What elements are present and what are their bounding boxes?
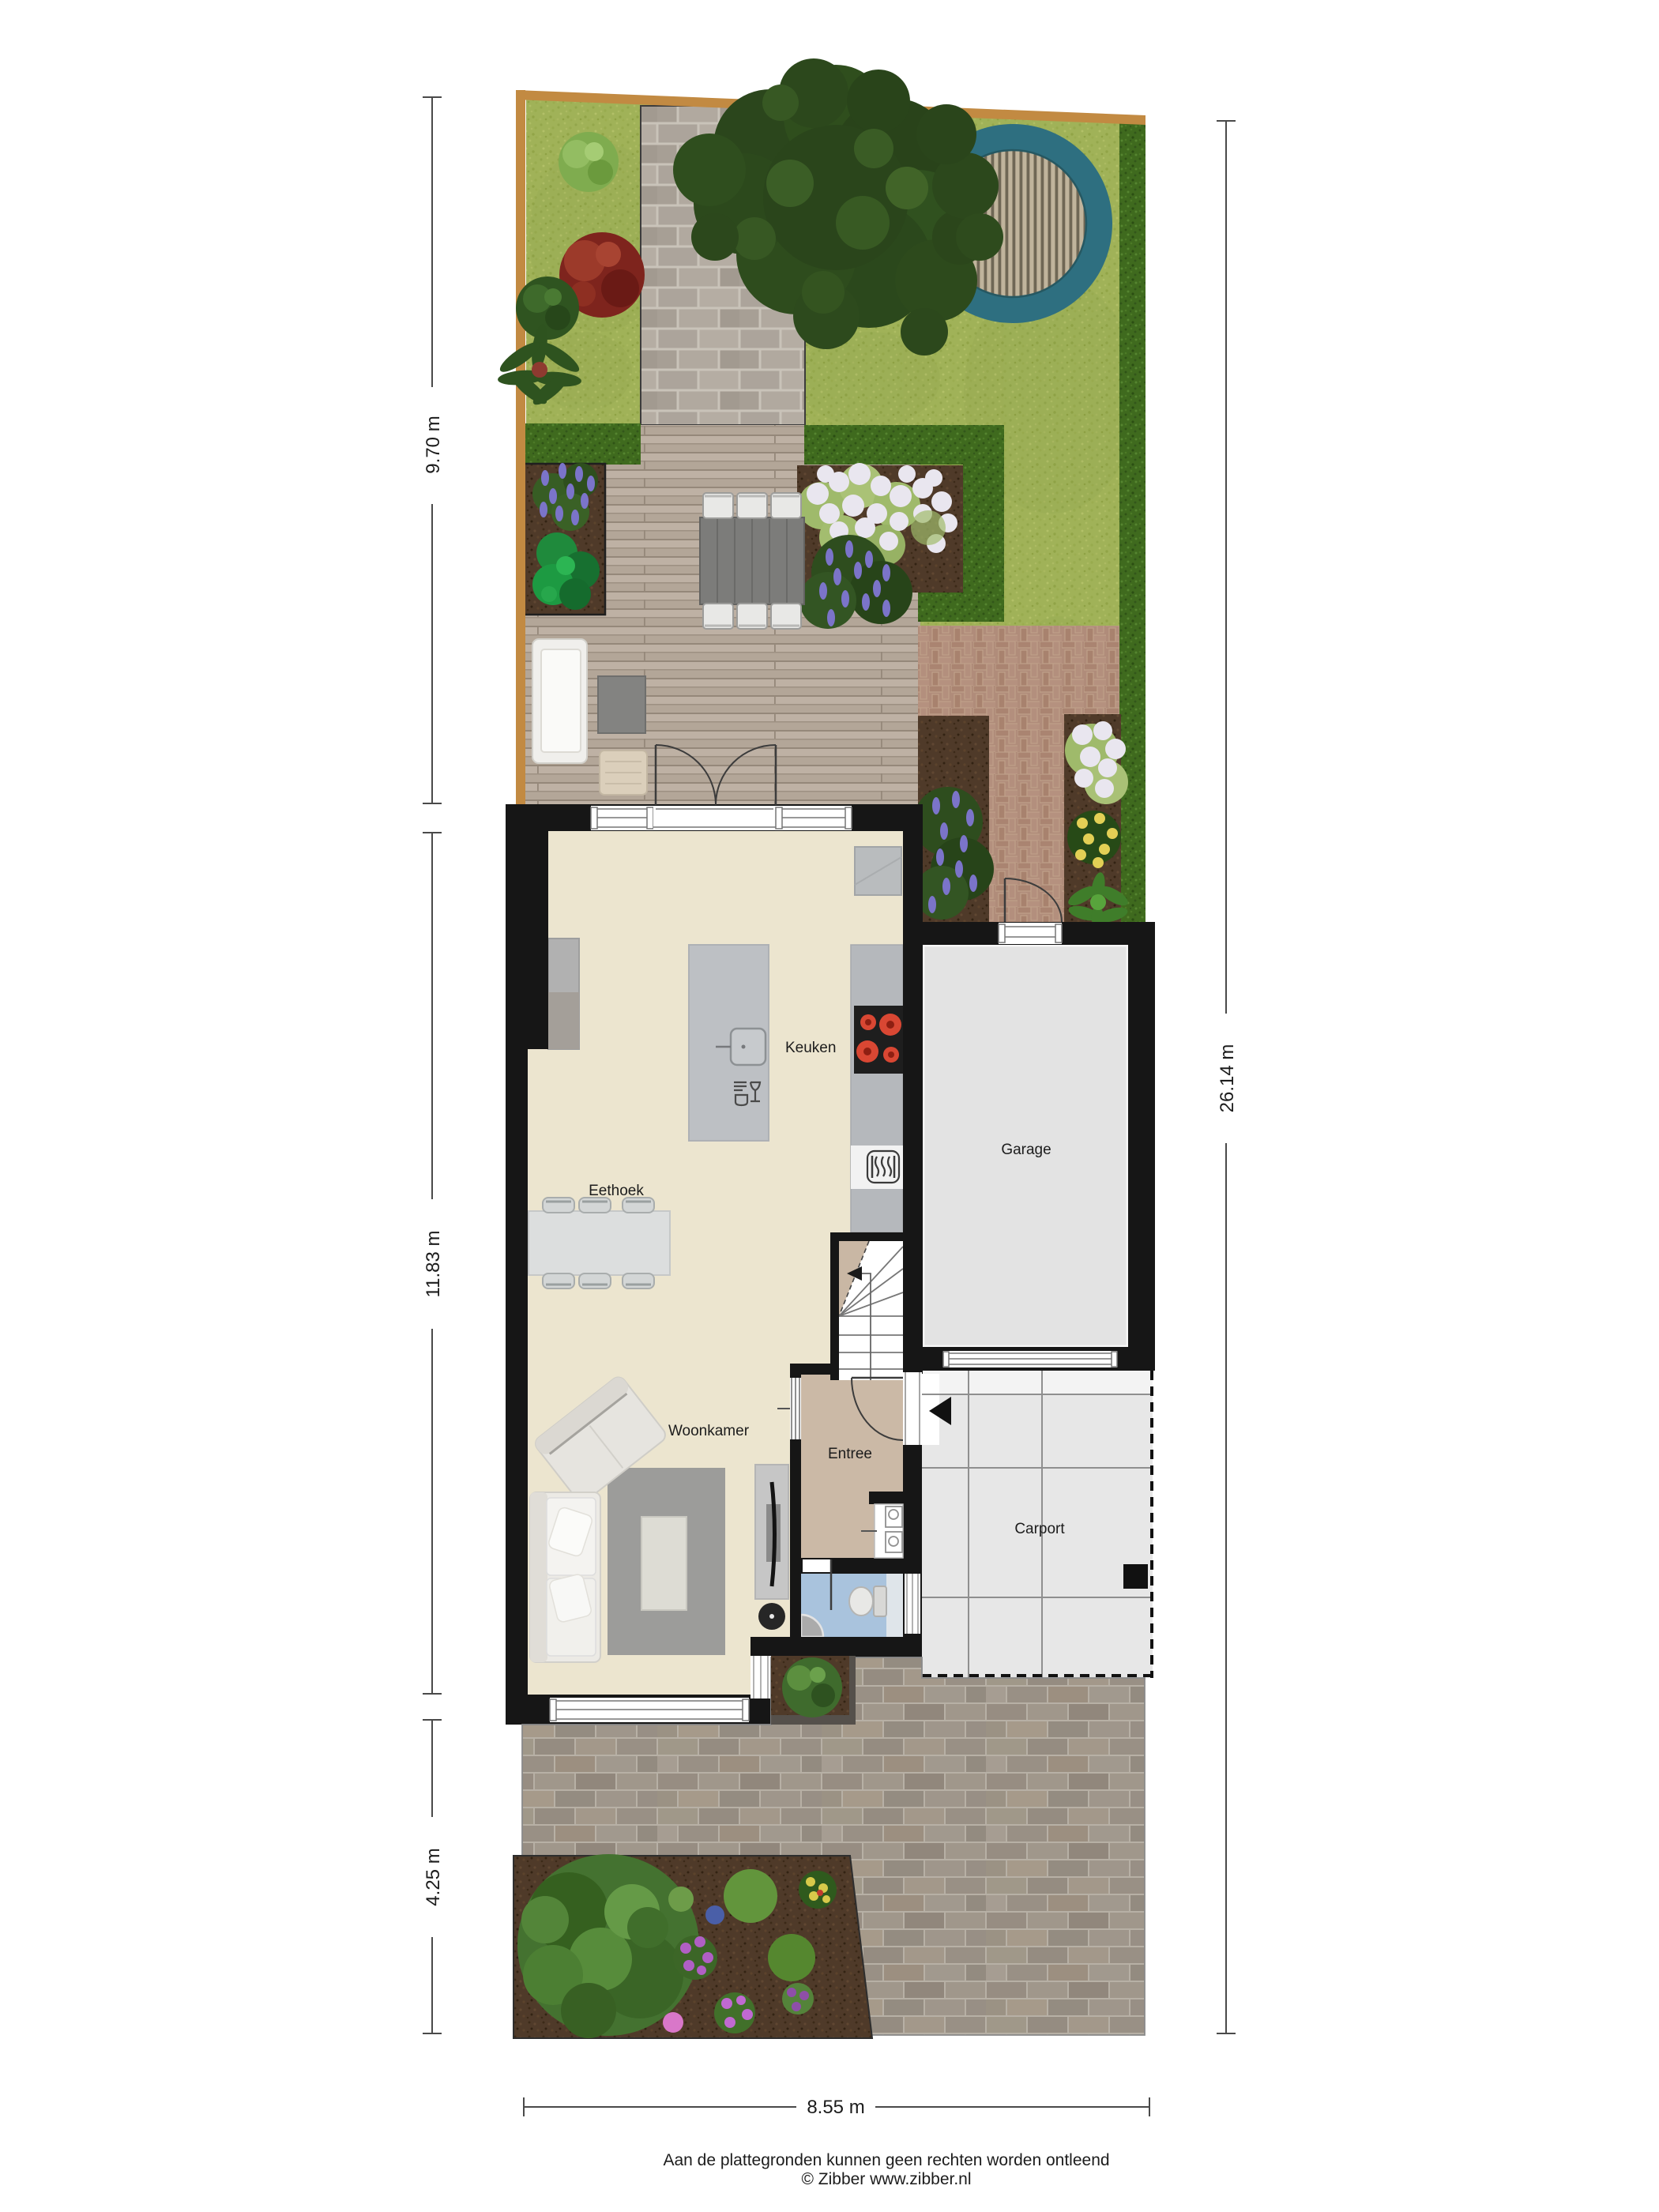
svg-text:9.70 m: 9.70 m [423, 416, 444, 473]
svg-text:Woonkamer: Woonkamer [668, 1423, 750, 1439]
svg-text:Aan de plattegronden kunnen ge: Aan de plattegronden kunnen geen rechten… [663, 2151, 1109, 2169]
svg-text:4.25 m: 4.25 m [423, 1848, 444, 1905]
svg-text:26.14 m: 26.14 m [1217, 1044, 1238, 1113]
svg-text:8.55 m: 8.55 m [807, 2097, 864, 2118]
svg-text:Eethoek: Eethoek [589, 1183, 644, 1199]
svg-text:Keuken: Keuken [785, 1040, 836, 1056]
svg-text:© Zibber www.zibber.nl: © Zibber www.zibber.nl [801, 2170, 971, 2188]
svg-text:Carport: Carport [1014, 1521, 1065, 1537]
svg-text:Entree: Entree [828, 1446, 872, 1462]
svg-text:Garage: Garage [1001, 1142, 1051, 1158]
svg-text:11.83 m: 11.83 m [423, 1231, 444, 1298]
